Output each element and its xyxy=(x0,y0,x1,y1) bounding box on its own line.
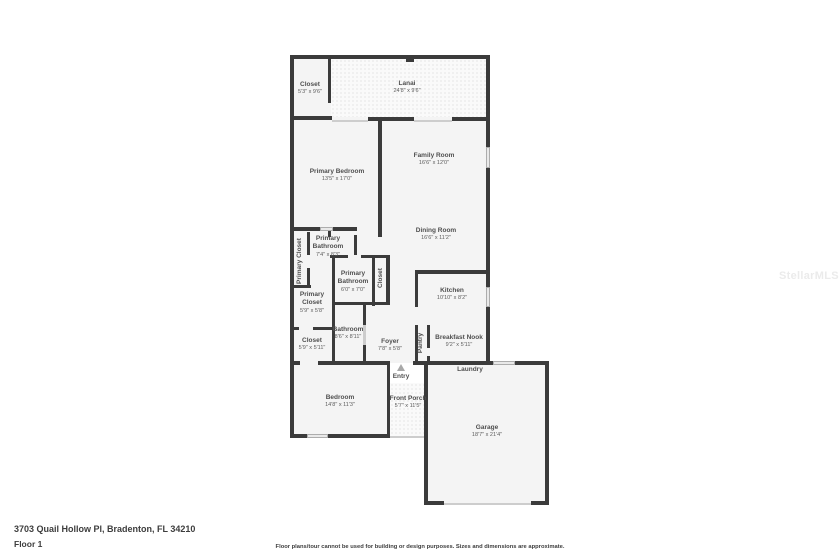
room-label-primary-bedroom: Primary Bedroom 13'5" x 17'0" xyxy=(310,168,365,184)
wall xyxy=(290,227,320,231)
watermark: StellarMLS xyxy=(779,270,839,282)
room-dims: 14'8" x 11'3" xyxy=(325,402,355,409)
room-dims: 5'7" x 11'5" xyxy=(390,403,427,410)
room-dims: 5'9" x 5'11" xyxy=(299,345,326,352)
room-label-breakfast-nook: Breakfast Nook 9'2" x 5'11" xyxy=(435,334,483,350)
room-label-family-room: Family Room 16'6" x 12'0" xyxy=(414,152,455,168)
room-label-closet-top: Closet 5'3" x 9'6" xyxy=(298,81,322,97)
wall xyxy=(372,258,375,306)
room-name: Primary Bathroom xyxy=(335,270,371,287)
room-label-primary-closet-2: Primary Closet 5'9" x 5'8" xyxy=(294,291,330,315)
porch-edge-line xyxy=(390,436,424,438)
wall xyxy=(318,361,390,365)
room-name: Primary Closet xyxy=(294,291,330,308)
window xyxy=(486,147,490,168)
room-dims: 7'4" x 8'3" xyxy=(310,252,346,259)
room-name: Garage xyxy=(472,424,502,432)
room-name: Bedroom xyxy=(325,394,355,402)
wall xyxy=(486,55,490,147)
wall xyxy=(328,59,331,103)
room-name: Bathroom xyxy=(333,326,364,334)
room-label-foyer: Foyer 7'8" x 5'8" xyxy=(378,338,402,354)
room-dims: 9'2" x 5'11" xyxy=(435,342,483,349)
room-dims: 18'7" x 21'4" xyxy=(472,432,502,439)
address-text: 3703 Quail Hollow Pl, Bradenton, FL 3421… xyxy=(14,524,195,534)
wall xyxy=(424,363,428,505)
wall xyxy=(290,55,490,59)
room-name: Primary Bathroom xyxy=(310,235,346,252)
wall xyxy=(363,302,366,325)
window xyxy=(486,287,490,307)
wall xyxy=(290,116,332,120)
wall xyxy=(368,117,414,121)
window xyxy=(307,434,328,438)
room-dims: 8'6" x 8'11" xyxy=(333,334,364,341)
wall xyxy=(486,307,490,365)
wall xyxy=(415,270,418,307)
wall xyxy=(515,361,548,365)
room-label-closet-hall: Closet xyxy=(377,268,385,288)
room-label-closet-bottom: Closet 5'9" x 5'11" xyxy=(299,337,326,353)
floor-plan-canvas: Closet 5'3" x 9'6" Lanai 24'8" x 9'6" Pr… xyxy=(0,0,840,560)
garage-door-line xyxy=(444,503,531,505)
room-name: Pantry xyxy=(417,333,425,353)
room-name: Primary Bedroom xyxy=(310,168,365,176)
wall xyxy=(290,55,294,438)
window xyxy=(320,227,333,231)
room-name: Foyer xyxy=(378,338,402,346)
wall xyxy=(354,235,357,255)
room-label-bedroom: Bedroom 14'8" x 11'3" xyxy=(325,394,355,410)
slider-door-line xyxy=(414,120,452,122)
room-name: Front Porch xyxy=(390,395,427,403)
room-label-pantry: Pantry xyxy=(417,333,425,353)
wall xyxy=(406,59,414,62)
room-label-laundry: Laundry xyxy=(457,366,483,374)
room-name: Kitchen xyxy=(437,287,467,295)
wall xyxy=(328,434,390,438)
wall xyxy=(386,255,390,303)
room-label-kitchen: Kitchen 10'10" x 8'2" xyxy=(437,287,467,303)
room-dims: 5'9" x 5'8" xyxy=(294,308,330,315)
room-name: Entry xyxy=(393,373,410,381)
room-name: Family Room xyxy=(414,152,455,160)
room-name: Laundry xyxy=(457,366,483,374)
room-dims: 10'10" x 8'2" xyxy=(437,295,467,302)
room-name: Closet xyxy=(298,81,322,89)
room-label-primary-closet-hall: Primary Closet xyxy=(296,238,304,284)
wall xyxy=(333,227,357,231)
wall xyxy=(486,168,490,287)
room-dims: 16'6" x 11'2" xyxy=(416,235,456,242)
room-name: Breakfast Nook xyxy=(435,334,483,342)
slider-door-line xyxy=(332,120,368,122)
wall xyxy=(427,356,430,363)
room-label-garage: Garage 18'7" x 21'4" xyxy=(472,424,502,440)
wall xyxy=(415,270,486,274)
room-dims: 5'3" x 9'6" xyxy=(298,89,322,96)
room-name: Closet xyxy=(377,268,385,288)
floor-label: Floor 1 xyxy=(14,539,42,549)
entry-arrow-icon xyxy=(397,364,405,371)
window xyxy=(493,361,515,365)
wall xyxy=(452,117,490,121)
room-dims: 13'5" x 17'0" xyxy=(310,176,365,183)
room-dims: 7'8" x 5'8" xyxy=(378,346,402,353)
room-dims: 16'6" x 12'0" xyxy=(414,160,455,167)
room-label-dining-room: Dining Room 16'6" x 11'2" xyxy=(416,227,456,243)
wall xyxy=(427,325,430,348)
room-label-bathroom: Bathroom 8'6" x 8'11" xyxy=(333,326,364,342)
room-label-lanai: Lanai 24'8" x 9'6" xyxy=(393,80,420,96)
room-dims: 6'0" x 7'0" xyxy=(335,287,371,294)
room-name: Primary Closet xyxy=(296,238,304,284)
wall xyxy=(378,119,382,237)
room-dims: 24'8" x 9'6" xyxy=(393,88,420,95)
room-name: Closet xyxy=(299,337,326,345)
wall xyxy=(363,345,366,361)
wall xyxy=(545,361,549,505)
room-name: Dining Room xyxy=(416,227,456,235)
room-name: Lanai xyxy=(393,80,420,88)
room-label-primary-bathroom-1: Primary Bathroom 7'4" x 8'3" xyxy=(310,235,346,259)
room-label-entry: Entry xyxy=(393,373,410,381)
wall xyxy=(307,268,310,285)
room-label-front-porch: Front Porch 5'7" x 11'5" xyxy=(390,395,427,411)
room-label-primary-bathroom-2: Primary Bathroom 6'0" x 7'0" xyxy=(335,270,371,294)
disclaimer-text: Floor plans/tour cannot be used for buil… xyxy=(276,544,565,550)
